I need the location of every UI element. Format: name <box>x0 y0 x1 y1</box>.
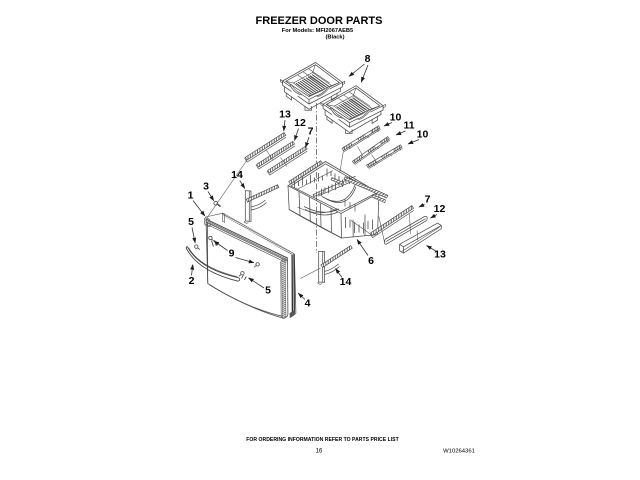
svg-text:4: 4 <box>305 298 311 310</box>
svg-text:7: 7 <box>425 194 431 206</box>
svg-text:For Models: MFI2067AEB5: For Models: MFI2067AEB5 <box>282 28 353 34</box>
svg-text:11: 11 <box>403 120 414 132</box>
svg-text:14: 14 <box>231 169 243 181</box>
svg-text:10: 10 <box>417 129 429 141</box>
svg-text:12: 12 <box>434 203 446 215</box>
svg-text:(Black): (Black) <box>326 34 345 40</box>
svg-text:12: 12 <box>294 117 306 129</box>
svg-text:W10264361: W10264361 <box>443 449 475 455</box>
svg-text:5: 5 <box>265 285 271 297</box>
svg-text:10: 10 <box>390 112 402 124</box>
svg-text:FOR ORDERING INFORMATION REFER: FOR ORDERING INFORMATION REFER TO PARTS … <box>246 437 399 443</box>
svg-text:14: 14 <box>340 276 352 288</box>
svg-text:13: 13 <box>279 109 291 121</box>
svg-text:5: 5 <box>188 216 194 228</box>
svg-text:13: 13 <box>434 249 446 261</box>
svg-text:8: 8 <box>365 53 371 65</box>
svg-text:1: 1 <box>188 190 194 202</box>
svg-text:2: 2 <box>189 275 195 287</box>
svg-text:FREEZER DOOR PARTS: FREEZER DOOR PARTS <box>256 15 383 27</box>
svg-text:16: 16 <box>316 449 323 455</box>
svg-text:9: 9 <box>229 248 235 260</box>
svg-text:7: 7 <box>308 126 314 138</box>
svg-text:6: 6 <box>368 255 374 267</box>
svg-text:3: 3 <box>203 181 209 193</box>
